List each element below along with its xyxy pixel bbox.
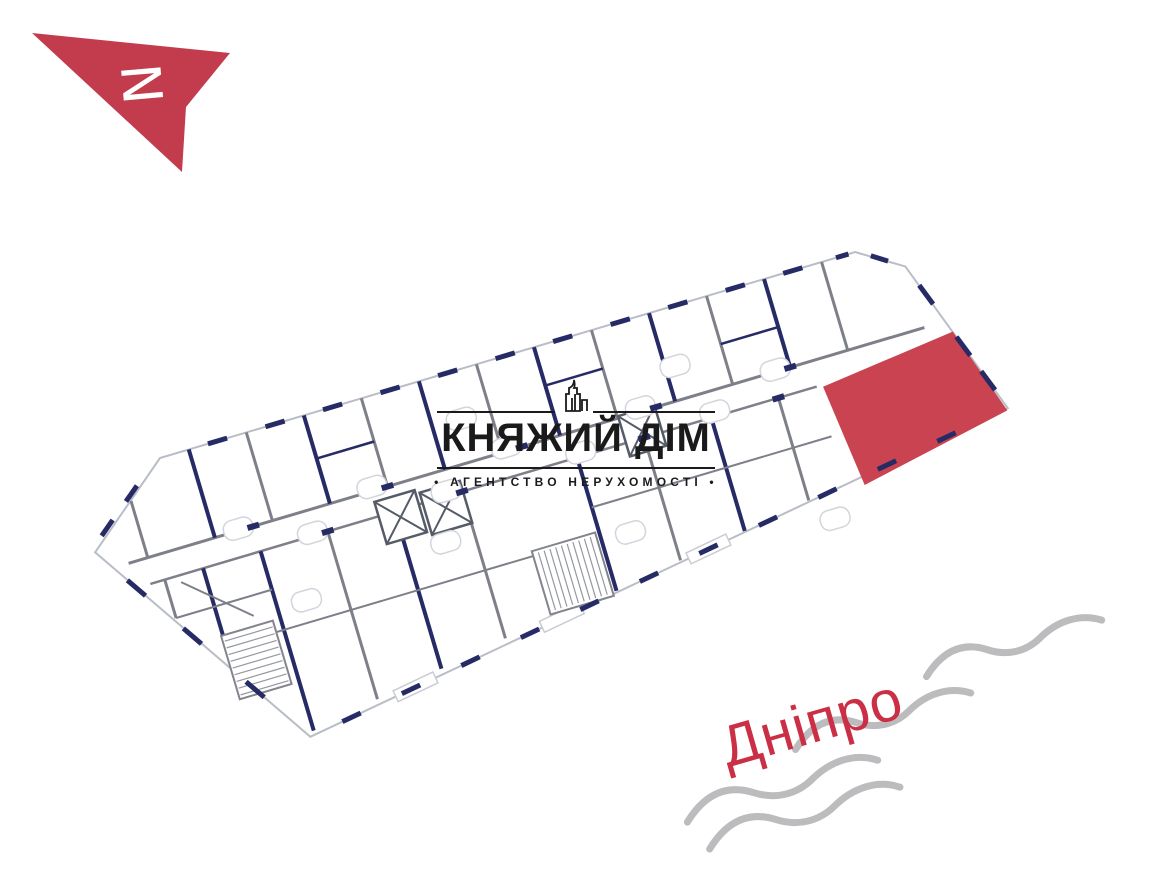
logo-rule-left <box>437 411 555 413</box>
floor-plan-page: N <box>0 0 1150 876</box>
north-letter: N <box>108 61 174 107</box>
logo-rule-right <box>593 411 715 413</box>
logo-underline <box>437 467 715 469</box>
agency-name: КНЯЖИЙ ДІМ <box>437 416 715 461</box>
north-arrow: N <box>32 33 230 172</box>
agency-building-icon <box>560 378 592 412</box>
agency-tagline: • АГЕНТСТВО НЕРУХОМОСТІ • <box>431 475 721 489</box>
